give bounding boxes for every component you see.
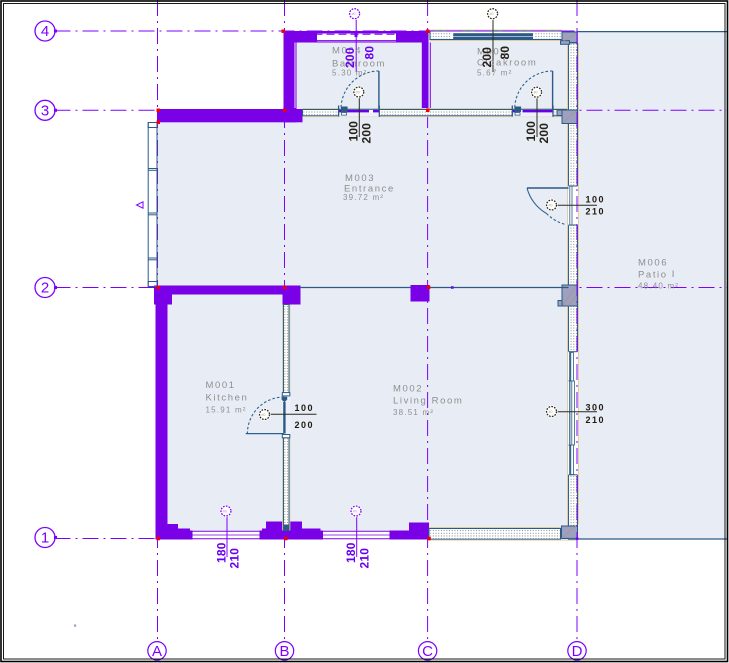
svg-text:200: 200	[480, 47, 494, 68]
svg-text:80: 80	[363, 46, 377, 60]
svg-text:100: 100	[295, 403, 315, 413]
svg-text:200: 200	[295, 420, 315, 430]
svg-text:5.30 m²: 5.30 m²	[332, 69, 368, 78]
svg-text:200: 200	[360, 123, 374, 144]
svg-text:A: A	[152, 643, 162, 660]
svg-text:D: D	[572, 643, 583, 660]
svg-text:Living Room: Living Room	[393, 396, 463, 407]
svg-text:3: 3	[41, 102, 49, 119]
svg-text:1: 1	[41, 530, 49, 547]
svg-text:M001: M001	[206, 380, 236, 391]
svg-text:180: 180	[214, 542, 228, 563]
svg-text:210: 210	[586, 415, 606, 425]
svg-text:100: 100	[524, 121, 538, 142]
svg-text:200: 200	[343, 47, 357, 68]
svg-text:M002: M002	[393, 384, 423, 395]
svg-text:180: 180	[344, 542, 358, 563]
svg-text:48.40 m²: 48.40 m²	[638, 282, 679, 291]
svg-text:M003: M003	[345, 173, 375, 184]
svg-text:2: 2	[41, 280, 49, 297]
svg-text:5.67 m²: 5.67 m²	[477, 69, 513, 78]
svg-text:210: 210	[586, 207, 606, 217]
svg-text:C: C	[422, 643, 433, 660]
svg-text:38.51 m²: 38.51 m²	[393, 408, 434, 417]
svg-text:100: 100	[347, 121, 361, 142]
svg-text:M006: M006	[638, 258, 668, 269]
svg-text:210: 210	[357, 548, 371, 569]
svg-text:15.91 m²: 15.91 m²	[206, 406, 247, 415]
svg-text:Kitchen: Kitchen	[206, 393, 249, 404]
svg-text:80: 80	[498, 46, 512, 60]
svg-text:B: B	[279, 643, 289, 660]
svg-text:4: 4	[41, 23, 49, 40]
svg-text:200: 200	[537, 123, 551, 144]
svg-text:100: 100	[586, 195, 606, 205]
svg-text:210: 210	[228, 548, 242, 569]
svg-text:300: 300	[586, 403, 606, 413]
svg-text:39.72 m²: 39.72 m²	[343, 193, 384, 202]
svg-text:Patio: Patio	[638, 270, 668, 281]
